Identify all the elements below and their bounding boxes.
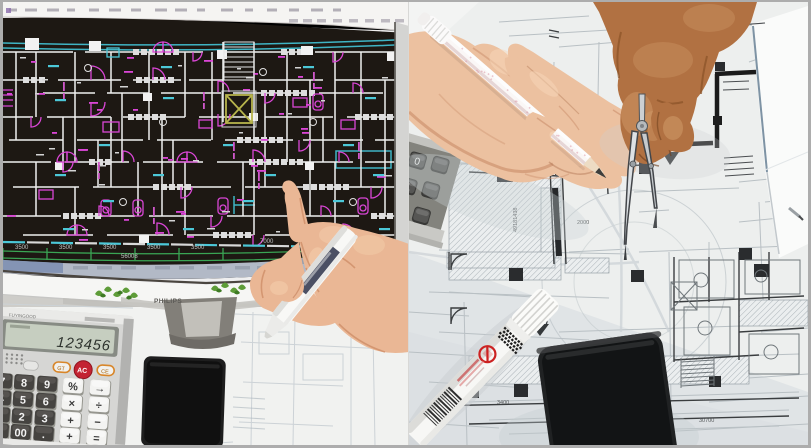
svg-text:+: +: [67, 415, 74, 427]
svg-text:00: 00: [14, 427, 27, 440]
svg-text:3400: 3400: [497, 400, 509, 406]
svg-text:9: 9: [44, 379, 51, 391]
svg-text:7000: 7000: [260, 239, 274, 245]
svg-text:+: +: [66, 431, 73, 443]
svg-text:56008: 56008: [121, 254, 138, 260]
svg-text:30700: 30700: [699, 418, 714, 424]
svg-text:3500: 3500: [103, 245, 117, 251]
svg-text:GT: GT: [57, 366, 66, 373]
svg-text:3500: 3500: [59, 245, 73, 251]
svg-text:CE: CE: [101, 369, 109, 376]
svg-text:%: %: [68, 381, 79, 394]
svg-text:3500: 3500: [15, 245, 29, 251]
svg-text:2: 2: [18, 411, 25, 423]
svg-text:×: ×: [68, 398, 75, 410]
svg-text:8: 8: [21, 377, 28, 389]
svg-text:AC: AC: [77, 367, 88, 375]
svg-text:6: 6: [42, 396, 49, 408]
svg-text:→: →: [94, 383, 106, 396]
svg-text:÷: ÷: [95, 400, 102, 412]
svg-text:PHILIPS: PHILIPS: [154, 298, 182, 305]
svg-text:5: 5: [19, 394, 26, 406]
svg-text:−: −: [94, 417, 101, 429]
svg-text:3500: 3500: [191, 245, 205, 251]
svg-text:3500: 3500: [147, 245, 161, 251]
svg-text:3: 3: [41, 413, 48, 425]
svg-text:=: =: [93, 433, 100, 445]
